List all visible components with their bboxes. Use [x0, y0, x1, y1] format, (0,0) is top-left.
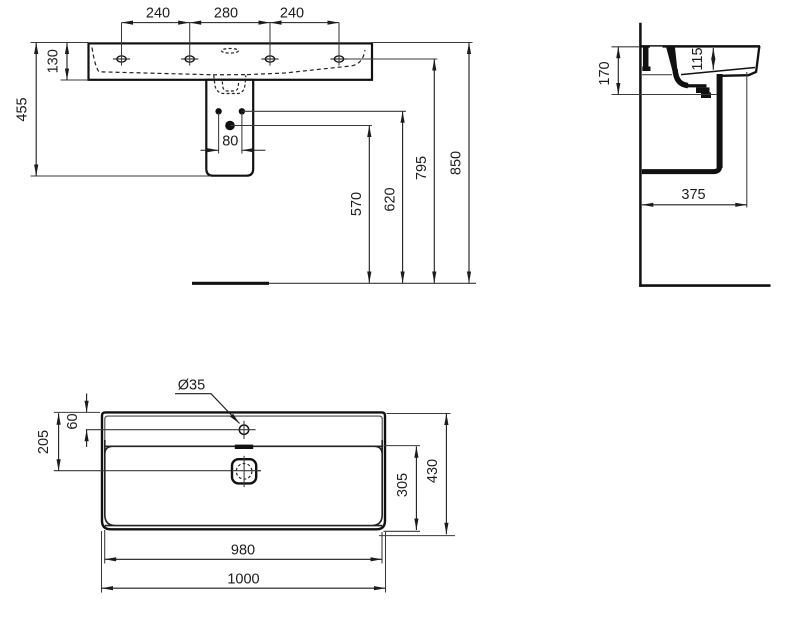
svg-text:795: 795 — [414, 156, 430, 180]
svg-text:1000: 1000 — [227, 572, 259, 588]
svg-text:170: 170 — [597, 61, 613, 85]
svg-text:305: 305 — [395, 473, 411, 497]
svg-text:570: 570 — [349, 192, 365, 216]
svg-text:430: 430 — [425, 459, 441, 483]
svg-text:Ø35: Ø35 — [178, 378, 205, 394]
svg-text:620: 620 — [383, 187, 399, 211]
svg-text:115: 115 — [690, 47, 706, 70]
svg-text:60: 60 — [65, 413, 81, 429]
svg-text:240: 240 — [280, 6, 304, 22]
svg-text:850: 850 — [449, 151, 465, 175]
svg-text:375: 375 — [681, 187, 705, 203]
svg-text:980: 980 — [231, 543, 255, 559]
svg-text:80: 80 — [222, 134, 238, 150]
svg-text:240: 240 — [146, 6, 170, 22]
svg-text:280: 280 — [214, 6, 238, 22]
svg-text:130: 130 — [46, 49, 62, 73]
svg-text:455: 455 — [15, 97, 31, 121]
svg-text:205: 205 — [36, 430, 52, 454]
